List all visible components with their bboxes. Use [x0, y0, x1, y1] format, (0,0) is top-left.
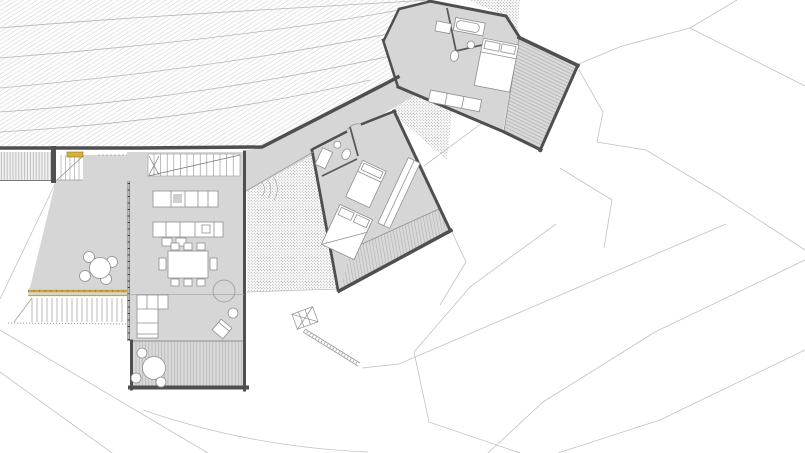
floor-plan-drawing: [0, 0, 805, 453]
yellow-bench: [67, 152, 83, 157]
internal-stair: [148, 154, 240, 176]
kitchen-counter: [153, 191, 218, 207]
terrace-stair: [56, 155, 83, 180]
side-table: [228, 308, 238, 318]
stool: [162, 238, 172, 246]
floor-plan-page: [0, 0, 805, 453]
